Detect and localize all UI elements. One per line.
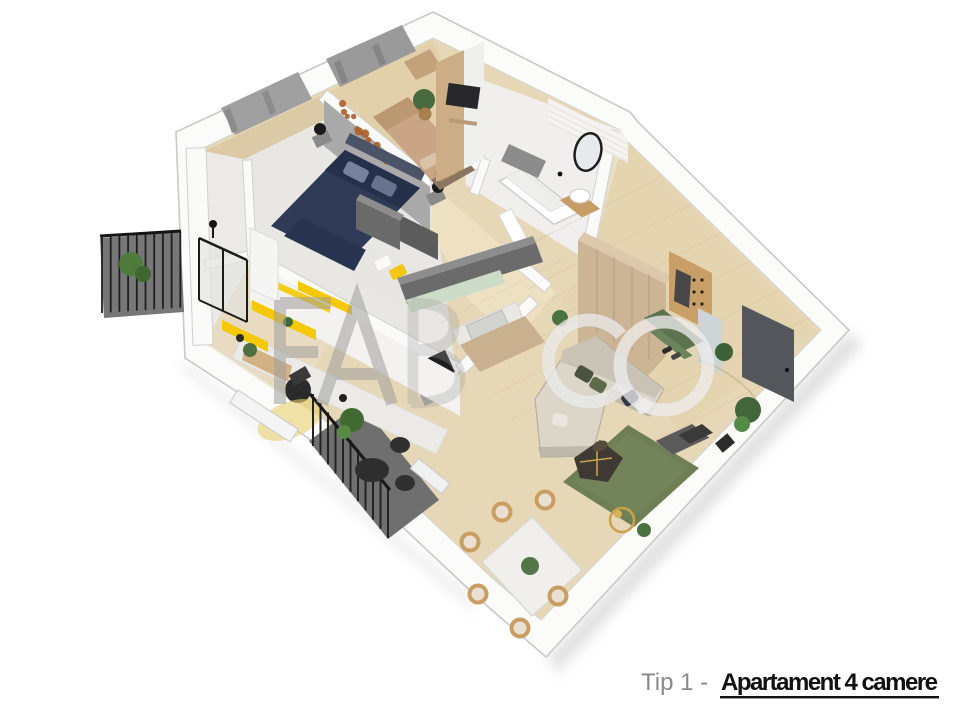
svg-text:Apartament 4 camere: Apartament 4 camere xyxy=(721,669,938,696)
svg-text:Tip 1 -: Tip 1 - xyxy=(641,669,708,696)
